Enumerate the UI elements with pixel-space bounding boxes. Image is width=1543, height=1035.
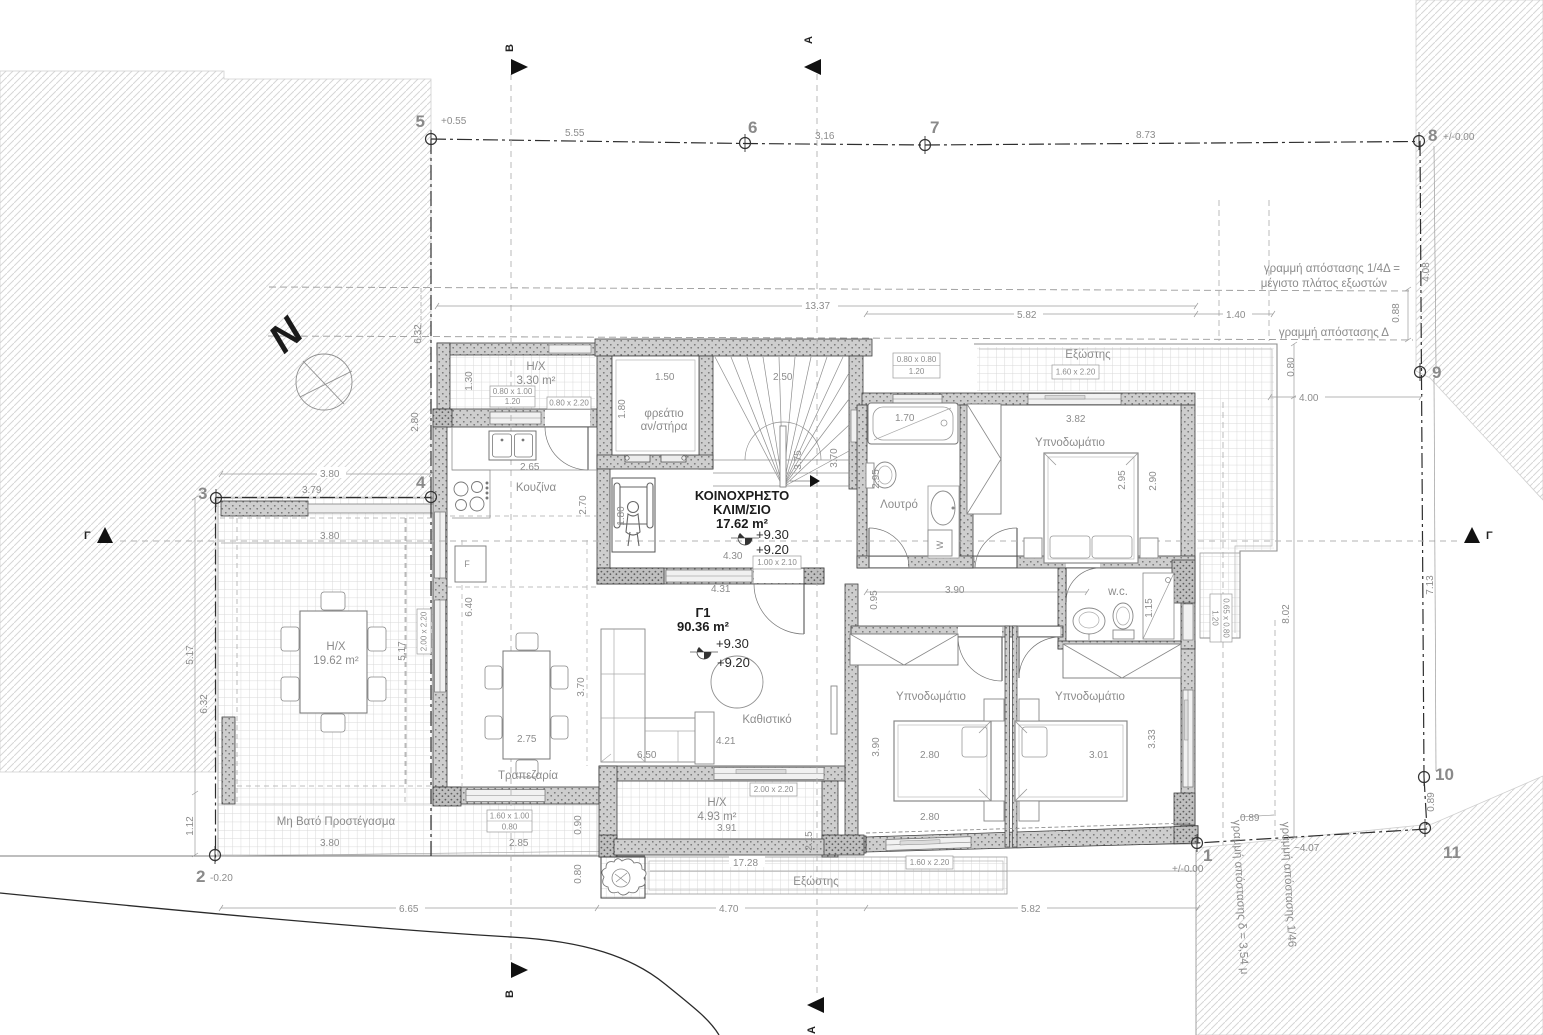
svg-text:1.60 x 2.20: 1.60 x 2.20	[1056, 368, 1096, 377]
svg-text:1.70: 1.70	[895, 413, 915, 424]
svg-text:4.70: 4.70	[719, 904, 739, 915]
svg-text:5: 5	[416, 112, 425, 131]
svg-text:+9.20: +9.20	[717, 655, 750, 670]
svg-text:5.17: 5.17	[185, 645, 196, 665]
svg-text:4.08: 4.08	[1421, 262, 1432, 282]
svg-text:6.32: 6.32	[199, 694, 210, 714]
svg-text:+0.55: +0.55	[441, 116, 467, 127]
svg-text:2.70: 2.70	[578, 495, 589, 515]
svg-text:W: W	[935, 540, 945, 549]
svg-text:3.70: 3.70	[576, 677, 587, 697]
svg-text:+9.20: +9.20	[756, 542, 789, 557]
svg-text:7.13: 7.13	[1425, 575, 1436, 595]
svg-text:6.50: 6.50	[637, 750, 657, 761]
svg-text:8.73: 8.73	[1136, 130, 1156, 141]
svg-text:Γ: Γ	[84, 530, 91, 542]
svg-text:5.17: 5.17	[397, 641, 408, 661]
svg-text:1.80: 1.80	[617, 399, 628, 419]
svg-text:1.00 x 2.10: 1.00 x 2.10	[757, 558, 797, 567]
svg-text:2.65: 2.65	[520, 462, 540, 473]
svg-text:0.89: 0.89	[1426, 792, 1437, 812]
svg-text:αν/στήρα: αν/στήρα	[641, 421, 688, 433]
svg-text:2.00 x 2.20: 2.00 x 2.20	[420, 611, 429, 651]
svg-text:19.62 m²: 19.62 m²	[313, 655, 359, 667]
svg-text:2.80: 2.80	[410, 412, 421, 432]
svg-text:4.93 m²: 4.93 m²	[698, 811, 737, 823]
svg-text:w.c.: w.c.	[1107, 586, 1128, 598]
svg-text:+9.30: +9.30	[756, 527, 789, 542]
svg-text:2.80: 2.80	[920, 812, 940, 823]
svg-text:3.80: 3.80	[320, 838, 340, 849]
svg-text:γραμμή απόστασης 1/4Δ =: γραμμή απόστασης 1/4Δ =	[1264, 263, 1400, 275]
svg-text:4: 4	[416, 473, 426, 492]
svg-text:Τραπεζαρία: Τραπεζαρία	[498, 770, 558, 782]
svg-text:5.82: 5.82	[1021, 904, 1041, 915]
svg-text:6.40: 6.40	[464, 597, 475, 617]
svg-text:H/X: H/X	[707, 797, 727, 809]
svg-text:3.80: 3.80	[320, 531, 340, 542]
svg-text:-0.20: -0.20	[210, 873, 233, 884]
svg-text:3.82: 3.82	[1066, 414, 1086, 425]
svg-text:ΚΛΙΜ/ΣΙΟ: ΚΛΙΜ/ΣΙΟ	[713, 502, 771, 517]
svg-text:5.82: 5.82	[1017, 310, 1037, 321]
svg-text:B: B	[504, 44, 516, 52]
svg-text:1.30: 1.30	[464, 371, 475, 391]
svg-text:+/-0.00: +/-0.00	[1443, 132, 1475, 143]
svg-text:Κουζίνα: Κουζίνα	[516, 482, 557, 494]
svg-text:Υπνοδωμάτιο: Υπνοδωμάτιο	[1035, 437, 1105, 449]
svg-text:Γ: Γ	[1486, 530, 1493, 542]
svg-text:0.88: 0.88	[1391, 303, 1402, 323]
svg-text:2.85: 2.85	[509, 838, 529, 849]
svg-text:μέγιστο πλάτος εξωστών: μέγιστο πλάτος εξωστών	[1261, 278, 1388, 290]
svg-text:3.91: 3.91	[717, 823, 737, 834]
svg-text:Υπνοδωμάτιο: Υπνοδωμάτιο	[1055, 691, 1125, 703]
svg-text:Εξώστης: Εξώστης	[1065, 349, 1111, 361]
svg-text:9: 9	[1432, 363, 1441, 382]
svg-text:3.30 m²: 3.30 m²	[517, 375, 556, 387]
svg-text:Μη Βατό Προστέγασμα: Μη Βατό Προστέγασμα	[277, 816, 396, 828]
svg-text:2.15: 2.15	[804, 831, 815, 851]
svg-text:4.31: 4.31	[711, 584, 731, 595]
svg-text:6.32: 6.32	[413, 324, 424, 344]
svg-text:1.40: 1.40	[1226, 310, 1246, 321]
svg-text:8: 8	[1428, 126, 1437, 145]
svg-text:1.20: 1.20	[1211, 610, 1220, 626]
svg-text:0.80: 0.80	[502, 823, 518, 832]
svg-text:3.33: 3.33	[1147, 729, 1158, 749]
svg-text:90.36 m²: 90.36 m²	[677, 619, 730, 634]
svg-text:Λουτρό: Λουτρό	[880, 499, 918, 511]
svg-text:+/-0.00: +/-0.00	[1172, 864, 1204, 875]
svg-text:γραμμή απόστασης Δ: γραμμή απόστασης Δ	[1279, 327, 1389, 339]
svg-text:1.20: 1.20	[909, 367, 925, 376]
svg-text:2.95: 2.95	[1117, 470, 1128, 490]
svg-text:φρεάτιο: φρεάτιο	[644, 408, 683, 420]
svg-text:2.50: 2.50	[773, 372, 793, 383]
svg-text:0.80 x 2.20: 0.80 x 2.20	[549, 399, 589, 408]
svg-text:3.90: 3.90	[945, 585, 965, 596]
svg-text:11: 11	[1443, 843, 1461, 862]
svg-text:2.80: 2.80	[920, 750, 940, 761]
svg-text:3.79: 3.79	[302, 485, 322, 496]
svg-text:Γ1: Γ1	[695, 605, 710, 620]
svg-text:1.60 x 2.20: 1.60 x 2.20	[910, 858, 950, 867]
svg-text:0.65 x 0.80: 0.65 x 0.80	[1222, 598, 1231, 638]
svg-text:4.30: 4.30	[723, 551, 743, 562]
svg-text:0.80 x 0.80: 0.80 x 0.80	[897, 355, 937, 364]
svg-text:0.80: 0.80	[1286, 357, 1297, 377]
svg-text:3.75: 3.75	[793, 450, 804, 470]
svg-text:1.20: 1.20	[505, 397, 521, 406]
svg-text:3.90: 3.90	[871, 737, 882, 757]
svg-text:F: F	[464, 559, 470, 569]
svg-text:13.37: 13.37	[805, 301, 830, 312]
svg-text:2.00 x 2.20: 2.00 x 2.20	[754, 785, 794, 794]
svg-text:B: B	[504, 990, 516, 998]
svg-text:8.02: 8.02	[1281, 604, 1292, 624]
svg-text:1.50: 1.50	[655, 372, 675, 383]
svg-text:3.01: 3.01	[1089, 750, 1109, 761]
svg-text:Εξώστης: Εξώστης	[793, 876, 839, 888]
svg-text:1.12: 1.12	[185, 816, 196, 836]
svg-text:1.80: 1.80	[616, 506, 627, 526]
svg-text:4.21: 4.21	[716, 736, 736, 747]
svg-text:7: 7	[930, 118, 939, 137]
svg-text:~4.07: ~4.07	[1294, 843, 1320, 854]
svg-text:Υπνοδωμάτιο: Υπνοδωμάτιο	[896, 691, 966, 703]
svg-text:0.80 x 1.00: 0.80 x 1.00	[493, 387, 533, 396]
svg-text:10: 10	[1435, 765, 1454, 784]
svg-text:3.80: 3.80	[320, 469, 340, 480]
svg-text:2.95: 2.95	[871, 469, 882, 489]
svg-text:H/X: H/X	[326, 641, 346, 653]
svg-text:0.80: 0.80	[573, 864, 584, 884]
svg-text:1.15: 1.15	[1144, 598, 1155, 618]
svg-text:2.90: 2.90	[1148, 471, 1159, 491]
svg-text:A: A	[803, 36, 815, 44]
svg-text:5.55: 5.55	[565, 128, 585, 139]
svg-text:3: 3	[198, 484, 207, 503]
svg-text:3.70: 3.70	[829, 448, 840, 468]
svg-text:+9.30: +9.30	[716, 636, 749, 651]
svg-text:A: A	[806, 1026, 818, 1034]
svg-text:2.75: 2.75	[517, 734, 537, 745]
svg-text:4.00: 4.00	[1299, 393, 1319, 404]
svg-text:Καθιστικό: Καθιστικό	[742, 714, 791, 726]
svg-text:ΚΟΙΝΟΧΡΗΣΤΟ: ΚΟΙΝΟΧΡΗΣΤΟ	[695, 488, 789, 503]
svg-text:2: 2	[196, 867, 205, 886]
svg-text:17.28: 17.28	[733, 858, 758, 869]
svg-text:1.60 x 1.00: 1.60 x 1.00	[490, 812, 530, 821]
svg-text:0.95: 0.95	[869, 590, 880, 610]
svg-text:H/X: H/X	[526, 361, 546, 373]
svg-text:0.90: 0.90	[573, 815, 584, 835]
svg-text:6.65: 6.65	[399, 904, 419, 915]
svg-text:6: 6	[748, 118, 757, 137]
svg-text:1: 1	[1203, 846, 1212, 865]
svg-text:3,16: 3,16	[815, 131, 835, 142]
